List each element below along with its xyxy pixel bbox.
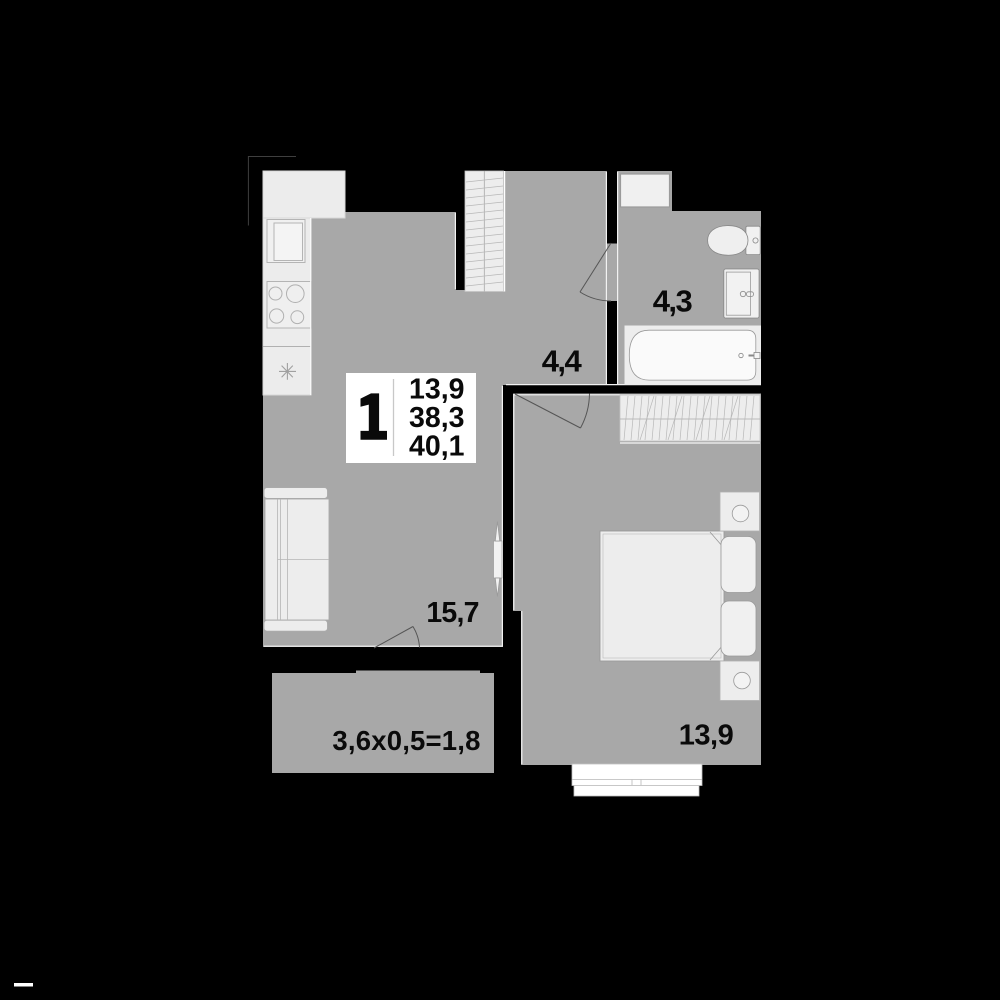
svg-text:38,3: 38,3: [409, 402, 464, 434]
svg-text:4,3: 4,3: [653, 284, 693, 319]
svg-text:40,1: 40,1: [409, 431, 465, 463]
svg-text:3,6x0,5=1,8: 3,6x0,5=1,8: [332, 725, 480, 756]
svg-text:13,9: 13,9: [679, 720, 734, 752]
svg-text:15,7: 15,7: [426, 597, 478, 629]
svg-text:4,4: 4,4: [542, 344, 583, 379]
svg-text:13,9: 13,9: [409, 373, 464, 405]
